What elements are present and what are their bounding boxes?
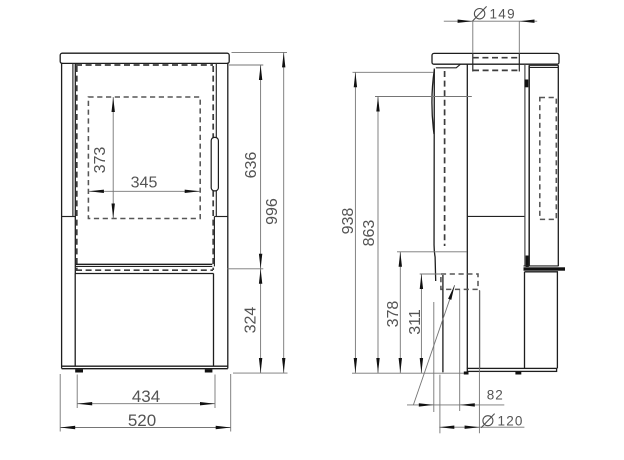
svg-text:863: 863 xyxy=(361,220,378,247)
svg-text:996: 996 xyxy=(264,198,281,225)
svg-text:378: 378 xyxy=(385,301,402,328)
svg-text:120: 120 xyxy=(498,414,524,429)
svg-text:324: 324 xyxy=(243,307,260,334)
svg-text:149: 149 xyxy=(490,6,516,21)
svg-text:434: 434 xyxy=(132,387,160,406)
svg-text:373: 373 xyxy=(92,147,109,174)
svg-text:520: 520 xyxy=(128,411,156,430)
svg-text:636: 636 xyxy=(243,152,260,179)
svg-text:345: 345 xyxy=(131,174,158,191)
svg-text:82: 82 xyxy=(487,387,504,402)
svg-text:311: 311 xyxy=(407,309,424,335)
svg-text:938: 938 xyxy=(340,208,357,235)
